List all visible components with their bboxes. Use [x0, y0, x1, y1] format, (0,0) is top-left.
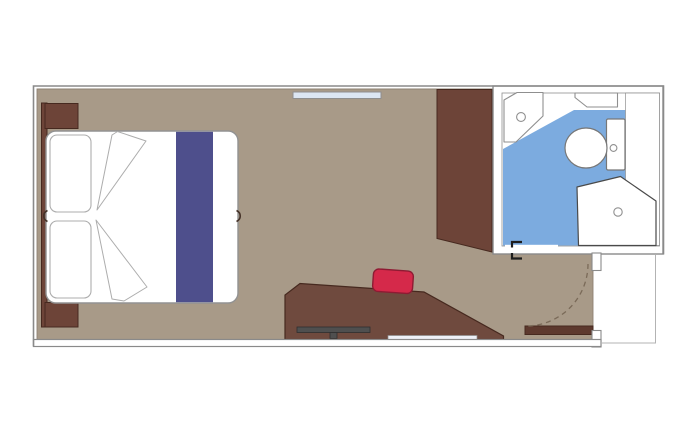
- nightstand-top: [45, 104, 78, 129]
- toilet: [565, 128, 607, 168]
- entry-door: [525, 326, 593, 335]
- nightstand-bottom: [45, 303, 78, 328]
- tv-stand: [330, 333, 337, 339]
- cabin-floor-plan: [0, 0, 700, 433]
- stool: [372, 269, 413, 294]
- corridor-alcove-outline: [601, 255, 656, 343]
- pillow-top: [50, 135, 91, 212]
- bottom-wall: [34, 340, 602, 347]
- tv: [297, 327, 370, 333]
- sink-faucet-icon: [517, 113, 526, 122]
- bed-runner: [176, 132, 213, 302]
- wardrobe: [437, 90, 492, 253]
- toilet-flush-icon: [610, 145, 617, 152]
- window: [293, 92, 381, 99]
- toilet-tank: [607, 119, 626, 170]
- pillow-bottom: [50, 221, 91, 298]
- shower-drain-icon: [614, 208, 622, 216]
- floor-plan-drawing: [0, 0, 700, 433]
- door-frame-top: [592, 253, 601, 271]
